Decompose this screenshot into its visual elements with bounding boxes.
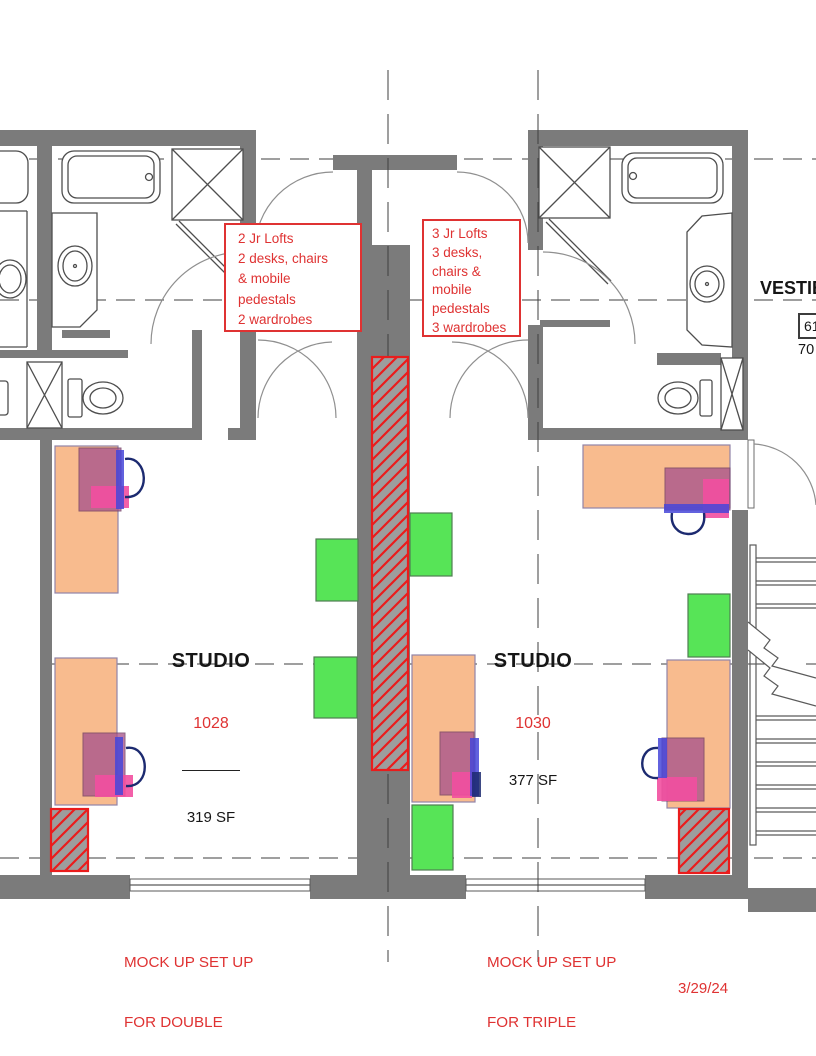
chair-seat [115,737,123,795]
hatched-block-left [51,809,88,871]
wardrobe-block [688,594,730,657]
caption-mockup-triple: MOCK UP SET UP FOR TRIPLE [487,913,616,1053]
note-line: 2 Jr Lofts [238,229,360,249]
caption-mockup-double: MOCK UP SET UP FOR DOUBLE [124,913,253,1053]
chair-seat [664,504,729,513]
note-line: chairs & [432,263,519,282]
caption-line: FOR TRIPLE [487,1013,616,1033]
hatched-shaft-wall [372,357,408,770]
drawing-date: 3/29/24 [678,980,728,997]
room-number: 1030 [512,715,554,732]
room-label-studio-1028: STUDIO 1028 319 SF [151,614,271,844]
caption-line: MOCK UP SET UP [487,953,616,973]
note-line: pedestals [238,290,360,310]
hatched-block-right [679,809,729,873]
vestibule-door-leaf [748,440,754,508]
note-line: & mobile [238,269,360,289]
vestibule-number-box: 61 [798,313,816,339]
floor-plan-page: 2 Jr Lofts 2 desks, chairs & mobile pede… [0,0,816,1056]
toilet-left [68,379,82,417]
room-label-studio-1030: STUDIO 1030 377 SF [473,614,593,807]
chair-seat [116,450,124,509]
tub-partial [0,151,28,203]
note-box-triple: 3 Jr Lofts 3 desks, chairs & mobile pede… [422,219,521,337]
wardrobe-block [316,539,358,601]
room-name: STUDIO [473,650,593,673]
mobile-pedestal [657,777,697,801]
wardrobe-block [410,513,452,576]
caption-line: FOR DOUBLE [124,1013,253,1033]
wardrobe-block [314,657,357,718]
room-area: 377 SF [473,772,593,789]
caption-line: MOCK UP SET UP [124,953,253,973]
note-line: 2 desks, chairs [238,249,360,269]
room-label-vestibule: VESTIB [760,278,816,299]
toilet-right [700,380,712,416]
bathtub-right [622,153,723,203]
chair-seat [658,738,667,778]
note-line: 3 wardrobes [432,319,519,338]
room-number: 1028 [190,715,232,732]
mobile-pedestal [452,772,472,798]
note-line: 3 Jr Lofts [432,225,519,244]
room-number-underline [182,770,240,771]
note-box-double: 2 Jr Lofts 2 desks, chairs & mobile pede… [224,223,362,332]
vestibule-area: 70 [798,342,814,358]
note-line: 3 desks, [432,244,519,263]
wardrobe-block [412,805,453,870]
chair-back [642,748,658,778]
room-area: 319 SF [151,809,271,826]
note-line: pedestals [432,300,519,319]
floor-plan-drawing [0,0,816,1056]
note-line: 2 wardrobes [238,310,360,330]
room-name: STUDIO [151,650,271,673]
chair-back [672,513,705,534]
stairs [748,545,816,845]
room-number: 61 [804,318,816,334]
note-line: mobile [432,281,519,300]
